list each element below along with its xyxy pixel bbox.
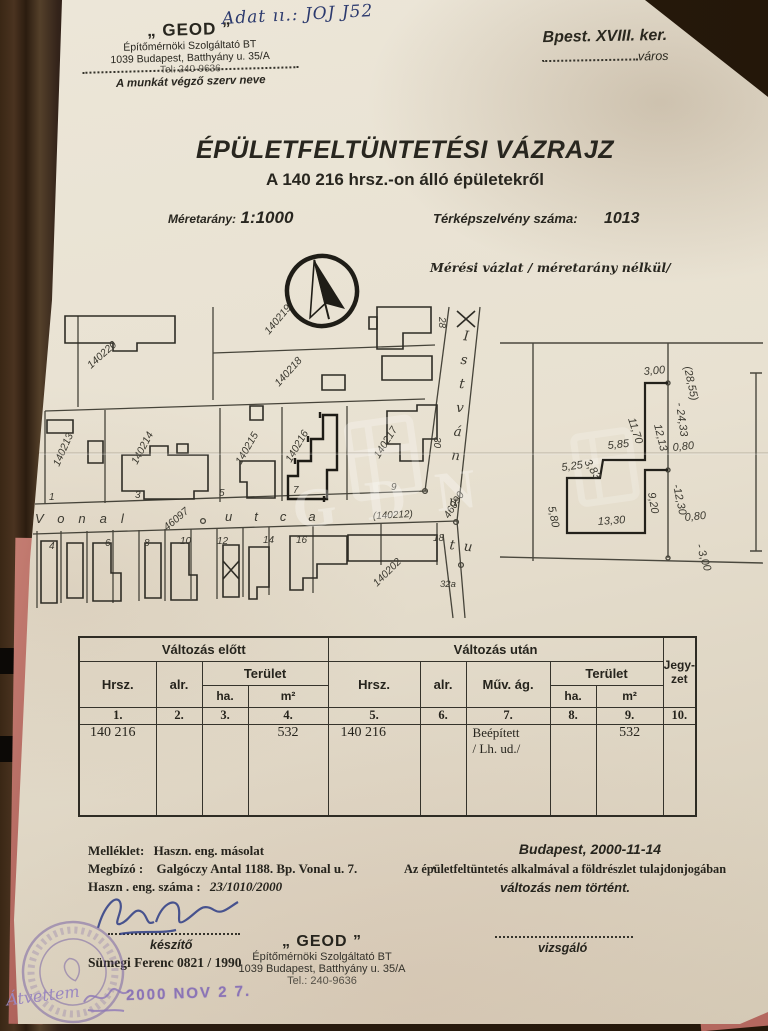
dimension: 0,80 [684,510,707,524]
document-paper: „ GEOD ” Építőmérnöki Szolgáltató BT 103… [0,0,768,1024]
dimension: 5,85 [607,438,630,452]
dimension: 13,30 [597,514,626,528]
examiner-caption: vizsgáló [538,941,587,955]
th-jegyzet: Jegy- zet [663,637,696,707]
maker-signature-line [108,933,240,935]
cross-number: 30 [431,437,442,449]
ordinal-cell: 5. [328,707,420,724]
org-footer-phone: Tel.: 240-9636 [227,975,417,987]
parcel-label: 140214 [129,430,156,467]
th-terulet-after: Terület [550,661,663,685]
dimension: 12,13 [651,423,670,453]
th-alr-before: alr. [156,661,202,707]
ordinal-cell: 2. [156,707,202,724]
doc-subtitle: A 140 216 hrsz.-on álló épületekről [160,170,650,190]
survey-note: Mérési vázlat / méretarány nélkül/ [430,260,671,275]
ordinal-cell: 10. [663,707,696,724]
dimension: 9,20 [645,491,661,515]
td-alr-after [420,724,466,816]
statement-line1: Az épületfeltüntetés alkalmával a földré… [398,862,732,877]
permit-value: 23/1010/2000 [210,879,282,894]
district-caption: város [638,49,669,64]
th-m2-before: m² [248,685,328,707]
dimension: 5,25 [561,459,585,474]
lot-number: 6 [105,538,111,549]
ordinal-cell: 7. [466,707,550,724]
client-row: Megbízó : Galgóczy Antal 1188. Bp. Vonal… [88,861,357,877]
ordinal-cell: 8. [550,707,596,724]
org-footer-block: „ GEOD ” Építőmérnöki Szolgáltató BT 103… [227,933,417,987]
client-value: Galgóczy Antal 1188. Bp. Vonal u. 7. [156,861,357,876]
td-hrsz-after: 140 216 [328,724,420,816]
examiner-signature-line [495,936,633,938]
parcel-label: 140213 [51,431,76,468]
scale-label: Méretarány: [168,212,236,226]
dimension: 5,80 [545,505,561,529]
th-group-before: Változás előtt [79,637,328,661]
td-muv-ag-line2: / Lh. ud./ [473,741,550,757]
org-footer-name: „ GEOD ” [227,933,417,951]
lot-number: 4 [49,541,55,552]
district-title: Bpest. XVIII. ker. [505,26,705,47]
td-m2-before: 532 [248,724,328,816]
ordinal-cell: 6. [420,707,466,724]
ordinal-cell: 3. [202,707,248,724]
th-hrsz-before: Hrsz. [79,661,156,707]
dimension: 3,00 [643,364,666,378]
maker-caption: készítő [150,938,192,952]
dimension: - 3,00 [693,542,713,573]
date-line: Budapest, 2000-11-14 [470,841,710,857]
sheet-value: 1013 [604,210,640,227]
parcel-label: 140216 [283,428,311,464]
org-footer-line1: Építőmérnöki Szolgáltató BT [227,951,417,963]
scale-value: 1:1000 [240,208,293,227]
lot-number: 1 [49,492,55,503]
th-ha-before: ha. [202,685,248,707]
street-name: Vonal [35,511,138,526]
lot-number: 5 [219,488,225,499]
lot-number: 8 [144,538,150,549]
sheet-label: Térképszelvény száma: [433,211,578,226]
detail-sketch: (28,55) - 24,33 3,00 11,70 12,13 5,85 3,… [498,325,768,593]
th-hrsz-after: Hrsz. [328,661,420,707]
td-m2-after: 532 [596,724,663,816]
td-jegyzet [663,724,696,816]
ordinal-cell: 4. [248,707,328,724]
td-alr-before [156,724,202,816]
lot-number: 12 [217,536,229,547]
td-hrsz-before: 140 216 [79,724,156,816]
paper-crease [26,452,768,455]
maker-name: Sümegi Ferenc 0821 / 1990 [88,955,241,971]
dotted-rule [542,58,638,62]
permit-row: Haszn . eng. száma : 23/1010/2000 [88,879,282,895]
statement-line2: változás nem történt. [398,880,732,895]
parcel-change-table: Változás előtt Változás után Jegy- zet H… [78,636,697,817]
parcel-label: 140219 [262,303,294,337]
permit-label: Haszn . eng. száma : [88,879,201,894]
scale-row: Méretarány: 1:1000 [168,208,293,228]
dimension: (28,55) [681,365,700,402]
lot-number: 18 [433,533,445,544]
th-jegyzet-line2: zet [664,672,696,686]
ordinal-cell: 1. [79,707,156,724]
client-label: Megbízó : [88,861,143,876]
district-block: Bpest. XVIII. ker. város [505,26,706,65]
th-muv-ag: Műv. ág. [466,661,550,707]
attachment-label: Melléklet: [88,843,144,858]
dimension: - 24,33 [673,402,690,438]
doc-title: ÉPÜLETFELTÜNTETÉSI VÁZRAJZ [160,136,650,165]
cross-number: 28 [436,316,447,329]
th-jegyzet-line1: Jegy- [664,658,696,672]
sheet-row: Térképszelvény száma: 1013 [433,210,640,228]
th-alr-after: alr. [420,661,466,707]
lot-number: 14 [263,535,275,546]
org-footer-line2: 1039 Budapest, Batthyány u. 35/A [227,963,417,975]
lot-number: 3 [135,490,141,501]
lot-number: 10 [180,536,192,547]
td-ha-before [202,724,248,816]
org-stamp-block: „ GEOD ” Építőmérnöki Szolgáltató BT 103… [89,17,291,90]
th-m2-after: m² [596,685,663,707]
td-ha-after [550,724,596,816]
th-group-after: Változás után [328,637,663,661]
ordinal-cell: 9. [596,707,663,724]
td-muv-ag: Beépített / Lh. ud./ [466,724,550,816]
attachment-value: Haszn. eng. másolat [154,843,265,858]
attachment-row: Melléklet: Haszn. eng. másolat [88,843,264,859]
parcel-label: 140218 [272,355,304,389]
th-ha-after: ha. [550,685,596,707]
td-muv-ag-line1: Beépített [473,725,550,741]
th-terulet-before: Terület [202,661,328,685]
